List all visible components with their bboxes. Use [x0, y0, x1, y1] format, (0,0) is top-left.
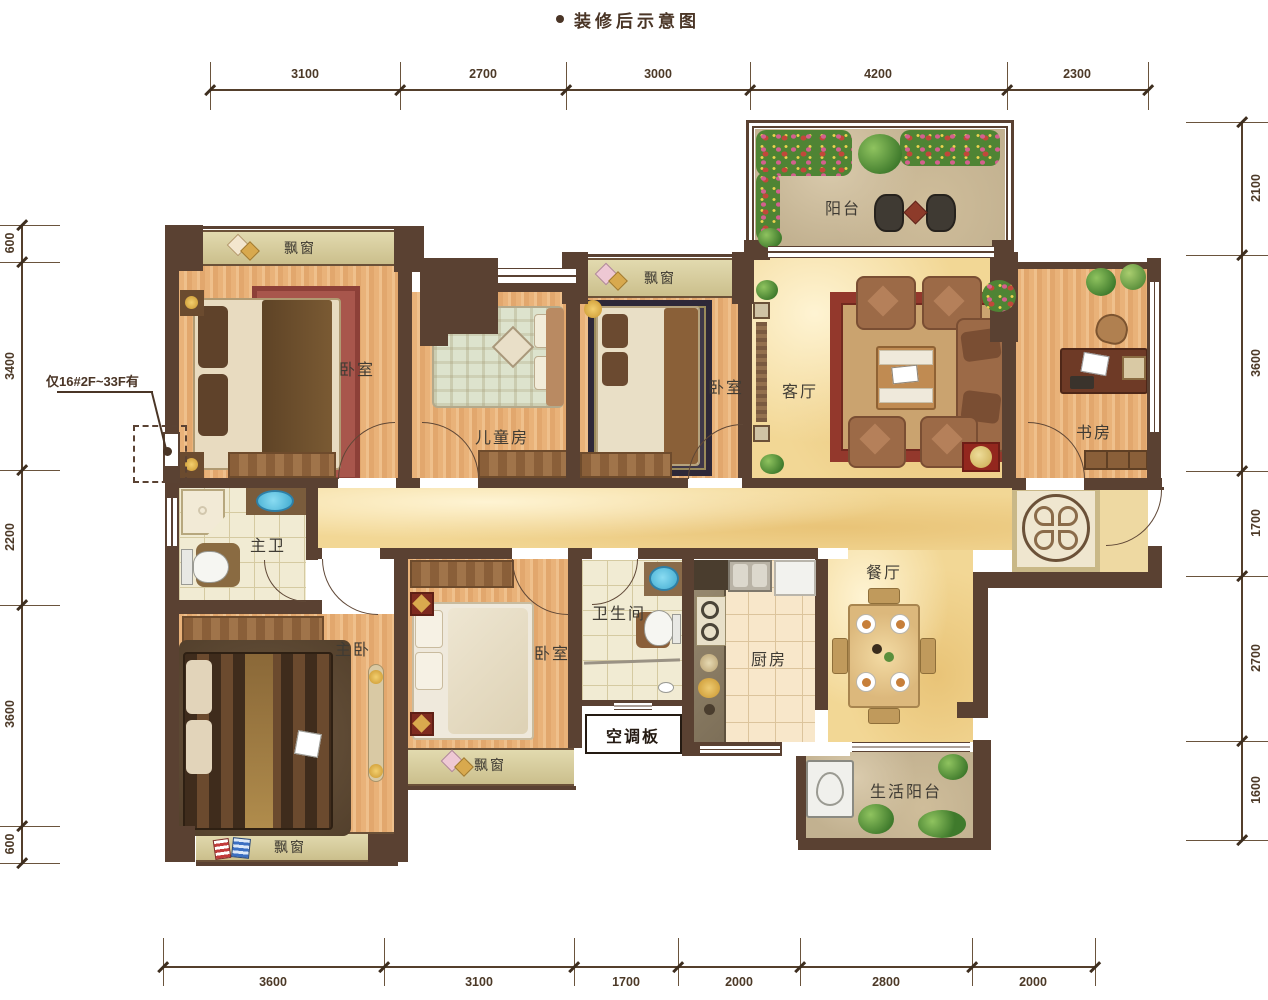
bed-pillow [415, 652, 443, 690]
center-bowl [884, 652, 894, 662]
door-opening [512, 548, 568, 559]
table-runner [879, 350, 933, 365]
bed-blanket [664, 308, 698, 464]
extension-line [1095, 938, 1096, 986]
door-opening [818, 548, 848, 559]
table-runner [879, 388, 933, 403]
wall-segment [988, 572, 1162, 588]
wall-segment [566, 292, 580, 480]
window [614, 702, 652, 710]
bay-window-label: 飘窗 [274, 837, 306, 857]
room-label-bedroom-bottom: 卧室 [534, 640, 570, 664]
desk-lamp [1122, 356, 1146, 380]
medallion-ring [1022, 494, 1090, 562]
dim-label: 2100 [1249, 174, 1263, 202]
dim-label: 2300 [1063, 67, 1091, 81]
dim-label: 2000 [725, 975, 753, 989]
dim-label: 3600 [259, 975, 287, 989]
bed-runner [245, 654, 273, 828]
extension-line [1186, 576, 1268, 577]
bay-window-label: 飘窗 [474, 755, 506, 775]
tv-wall-rosette [753, 425, 770, 442]
extension-line [0, 605, 60, 606]
window [166, 498, 178, 546]
wardrobe [410, 560, 514, 588]
door-opening [338, 478, 396, 488]
burner [701, 623, 719, 641]
wall-segment [420, 258, 498, 334]
note-label: 仅16#2F~33F有 [46, 371, 139, 390]
door-opening [688, 478, 742, 488]
dim-label: 1700 [612, 975, 640, 989]
dining-chair [920, 638, 936, 674]
wall-segment [306, 487, 318, 562]
dim-line-bottom [163, 966, 1096, 968]
bench-knob [369, 670, 383, 684]
bed-blanket [262, 300, 332, 468]
extension-line [800, 938, 801, 986]
plant-icon [938, 754, 968, 780]
room-label-kids-room: 儿童房 [475, 424, 529, 448]
extension-line [0, 225, 60, 226]
plant-icon [756, 280, 778, 300]
dim-label: 3000 [644, 67, 672, 81]
bench-knob [369, 764, 383, 778]
dining-chair [832, 638, 848, 674]
wall-segment [368, 834, 408, 862]
room-label-bedroom-top-mid: 卧室 [708, 374, 744, 398]
title-bullet-icon [556, 15, 564, 23]
tv-feature-wall [756, 322, 767, 422]
bay-window-label: 飘窗 [284, 238, 316, 258]
medallion-scroll [1058, 506, 1078, 526]
door-opening [306, 560, 318, 600]
plant-icon [858, 134, 902, 174]
extension-line [0, 470, 60, 471]
dim-label: 2800 [872, 975, 900, 989]
paper [1080, 352, 1109, 376]
extension-line [0, 262, 60, 263]
shower-drain [198, 506, 207, 515]
extension-line [384, 938, 385, 986]
tv-wall-rosette [753, 302, 770, 319]
wall-segment [682, 548, 694, 744]
extension-line [0, 826, 60, 827]
entry-door-leaf [1106, 487, 1164, 490]
dim-line-right [1241, 122, 1243, 841]
fridge [774, 560, 816, 596]
room-label-living-room: 客厅 [782, 378, 818, 402]
extension-line [1186, 122, 1268, 123]
bed-pillow [186, 660, 212, 714]
bed-pillow [198, 374, 228, 436]
wall-segment [586, 254, 734, 257]
tray [294, 730, 322, 758]
cabinet [1084, 450, 1148, 470]
toilet-bowl [644, 610, 674, 646]
wall-segment [973, 740, 991, 850]
window [498, 268, 576, 284]
medallion-scroll [1034, 506, 1054, 526]
wall-segment [957, 702, 988, 718]
dim-label: 2200 [3, 523, 17, 551]
dim-label: 3100 [465, 975, 493, 989]
kitchen-jar [704, 704, 715, 715]
laptop [1070, 376, 1094, 389]
flower-bed [756, 130, 852, 176]
extension-line [1186, 840, 1268, 841]
dashed-callout-box [133, 425, 187, 483]
bed-blanket [546, 308, 564, 406]
wall-segment [796, 748, 806, 840]
door-opening [322, 548, 380, 559]
kitchen-counter-corner [694, 560, 728, 590]
food-dish [862, 678, 871, 687]
dim-label: 2700 [1249, 644, 1263, 672]
dim-label: 3600 [1249, 349, 1263, 377]
wall-segment [420, 334, 448, 346]
wall-segment [398, 270, 412, 480]
plant-icon [858, 804, 894, 834]
dining-chair [868, 588, 900, 604]
dim-label: 1700 [1249, 509, 1263, 537]
medallion-scroll [1034, 530, 1054, 550]
extension-line [1186, 471, 1268, 472]
bed-pillow [602, 352, 628, 386]
flower-bed [900, 130, 1000, 166]
floor-plan: 装修后示意图 3100 2700 3000 4200 2300 3600 310… [0, 0, 1268, 1000]
sink-bowl [733, 564, 748, 587]
wall-segment [165, 826, 195, 862]
extension-line [972, 938, 973, 986]
door-opening [592, 548, 638, 559]
page-title: 装修后示意图 [574, 7, 700, 32]
toilet-bowl [193, 551, 229, 583]
wall-segment [1148, 546, 1162, 576]
room-label-balcony: 阳台 [825, 195, 861, 219]
center-bowl [872, 644, 882, 654]
dim-label: 2000 [1019, 975, 1047, 989]
room-label-service-balcony: 生活阳台 [870, 778, 942, 802]
plant-icon [760, 454, 784, 474]
bay-window-label: 飘窗 [644, 268, 676, 288]
dim-line-left [21, 225, 23, 863]
wardrobe [228, 452, 336, 478]
shower-head [658, 682, 674, 693]
wall-segment [973, 572, 988, 718]
plant-icon [1086, 268, 1116, 296]
pillow-icon [213, 838, 232, 860]
dim-label: 600 [3, 834, 17, 855]
room-label-kitchen: 厨房 [751, 646, 787, 670]
hallway-floor [312, 486, 1012, 550]
sink-basin [649, 566, 679, 591]
toilet-tank [181, 549, 193, 585]
wall-segment [165, 225, 203, 271]
wardrobe [580, 452, 672, 478]
dim-label: 3100 [291, 67, 319, 81]
door-arc [322, 559, 378, 615]
food-dish [896, 620, 905, 629]
door-opening [420, 478, 478, 488]
dim-label: 1600 [1249, 776, 1263, 804]
plant-icon [918, 810, 966, 838]
sink-bowl [752, 564, 767, 587]
extension-line [678, 938, 679, 986]
wall-segment [394, 548, 408, 835]
door-opening [1026, 478, 1084, 490]
window [700, 745, 780, 754]
room-label-master-bedroom: 主卧 [335, 636, 371, 660]
wall-segment [200, 226, 398, 229]
book [891, 365, 919, 385]
room-label-study: 书房 [1076, 419, 1112, 443]
bed-pillow [602, 314, 628, 348]
bed-blanket [448, 608, 528, 734]
wall-segment [196, 862, 398, 866]
wall-segment [815, 558, 828, 710]
toilet-tank [672, 614, 681, 644]
room-label-bathroom: 卫生间 [592, 600, 646, 624]
bed-pillow [186, 720, 212, 774]
ac-panel-label: 空调板 [606, 723, 660, 747]
extension-line [163, 938, 164, 986]
kitchen-bowl [700, 654, 718, 672]
flower-vase [982, 280, 1016, 312]
pillow-icon [231, 837, 251, 859]
dim-label: 3600 [3, 700, 17, 728]
sink-basin [256, 490, 294, 512]
dining-chair [868, 708, 900, 724]
dim-label: 2700 [469, 67, 497, 81]
room-label-bedroom-top-left: 卧室 [339, 356, 375, 380]
extension-line [1186, 255, 1268, 256]
wall-segment [568, 548, 582, 748]
leader-line [57, 391, 153, 393]
wall-segment [408, 786, 576, 790]
window [852, 742, 970, 752]
extension-line [1186, 741, 1268, 742]
room-label-dining-room: 餐厅 [866, 559, 902, 583]
dim-label: 3400 [3, 352, 17, 380]
sliding-door-window [768, 246, 994, 258]
food-dish [896, 678, 905, 687]
stool-cushion [970, 446, 992, 468]
nightstand-lamp [185, 296, 198, 309]
door-opening [782, 742, 850, 756]
washer-drum [816, 772, 844, 806]
medallion-scroll [1058, 530, 1078, 550]
dim-label: 4200 [864, 67, 892, 81]
wall-segment [798, 838, 983, 850]
plant-icon [1120, 264, 1146, 290]
wall-segment [179, 478, 1012, 488]
window [1149, 282, 1160, 432]
wardrobe [478, 450, 570, 478]
room-label-master-bath: 主卫 [250, 532, 286, 556]
extension-line [0, 863, 60, 864]
extension-line [574, 938, 575, 986]
wall-segment [179, 600, 322, 614]
dim-label: 600 [3, 233, 17, 254]
burner [701, 601, 719, 619]
food-dish [862, 620, 871, 629]
kitchen-bowl [698, 678, 720, 698]
plant-icon [758, 228, 782, 248]
